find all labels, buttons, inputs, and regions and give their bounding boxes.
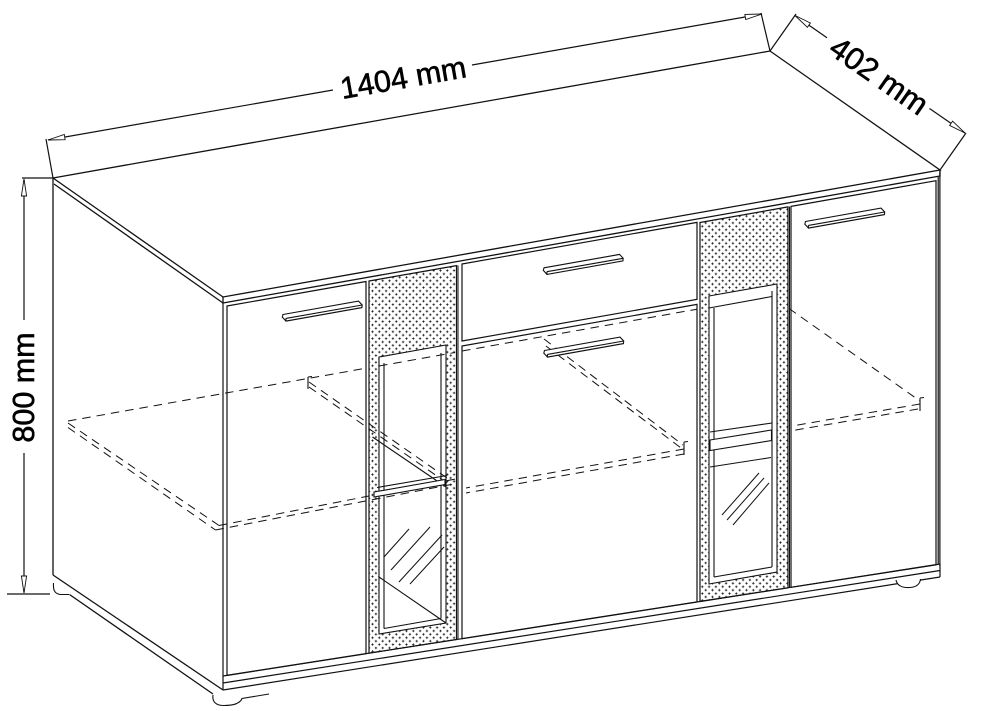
svg-text:800 mm: 800 mm [7,332,41,442]
